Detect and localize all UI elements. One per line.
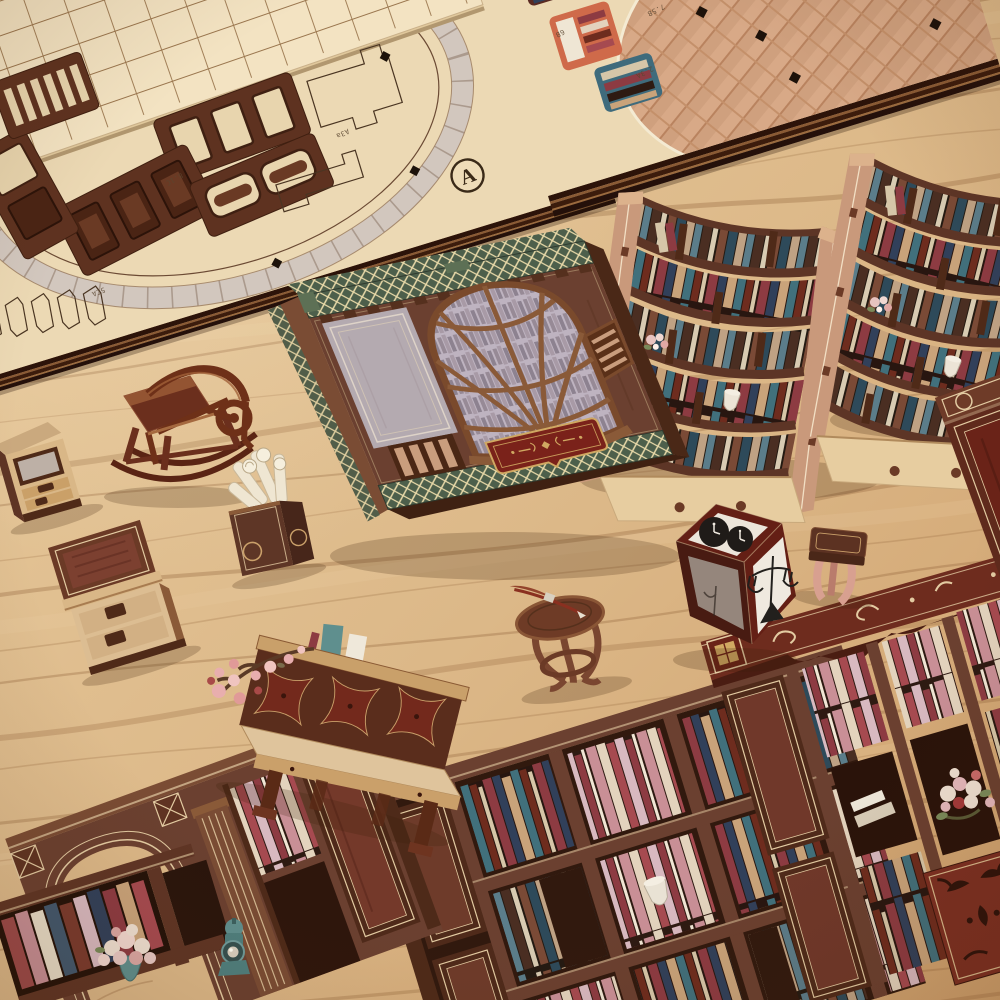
photo-canvas: A3a 5CA 8.1C A: [0, 0, 1000, 1000]
vignette-overlay: [0, 0, 1000, 1000]
